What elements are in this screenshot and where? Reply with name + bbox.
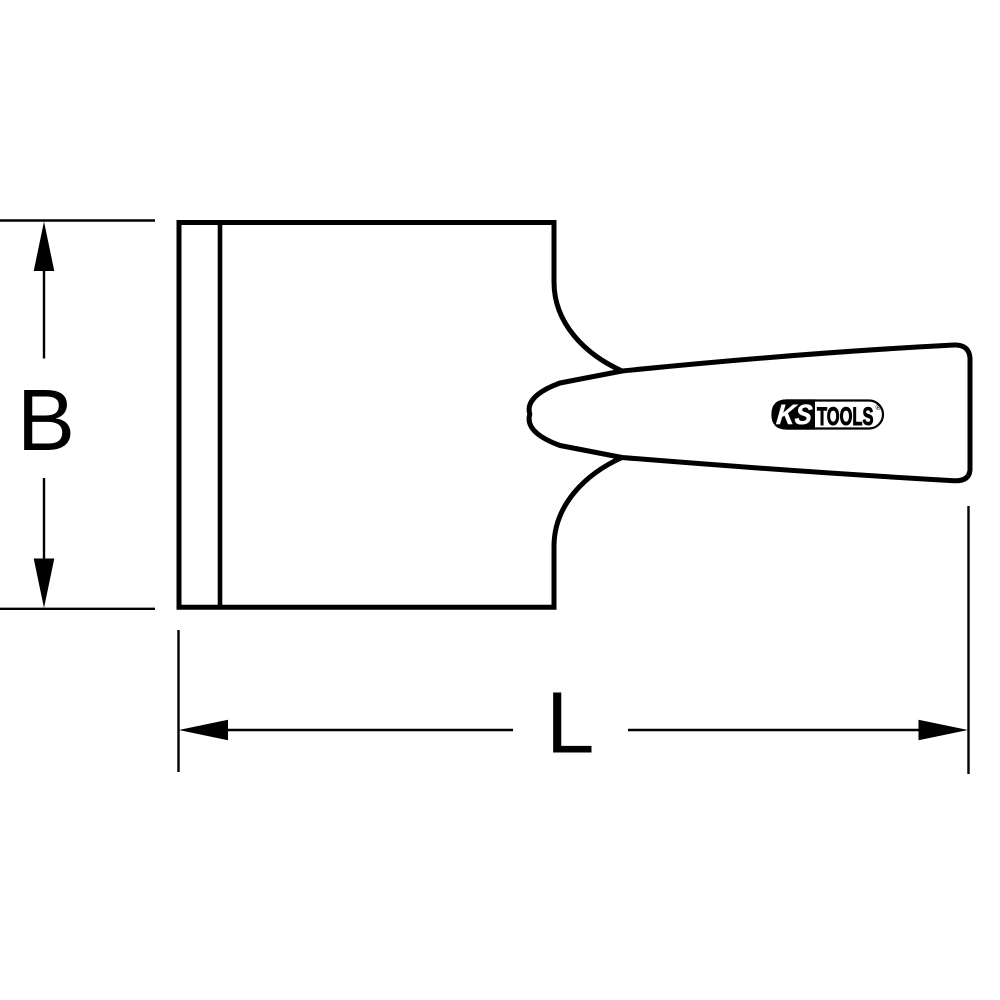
svg-text:B: B [17, 372, 75, 469]
svg-text:TOOLS: TOOLS [817, 403, 874, 431]
svg-text:®: ® [876, 403, 882, 412]
svg-text:L: L [546, 675, 594, 772]
svg-text:KS: KS [775, 399, 814, 430]
